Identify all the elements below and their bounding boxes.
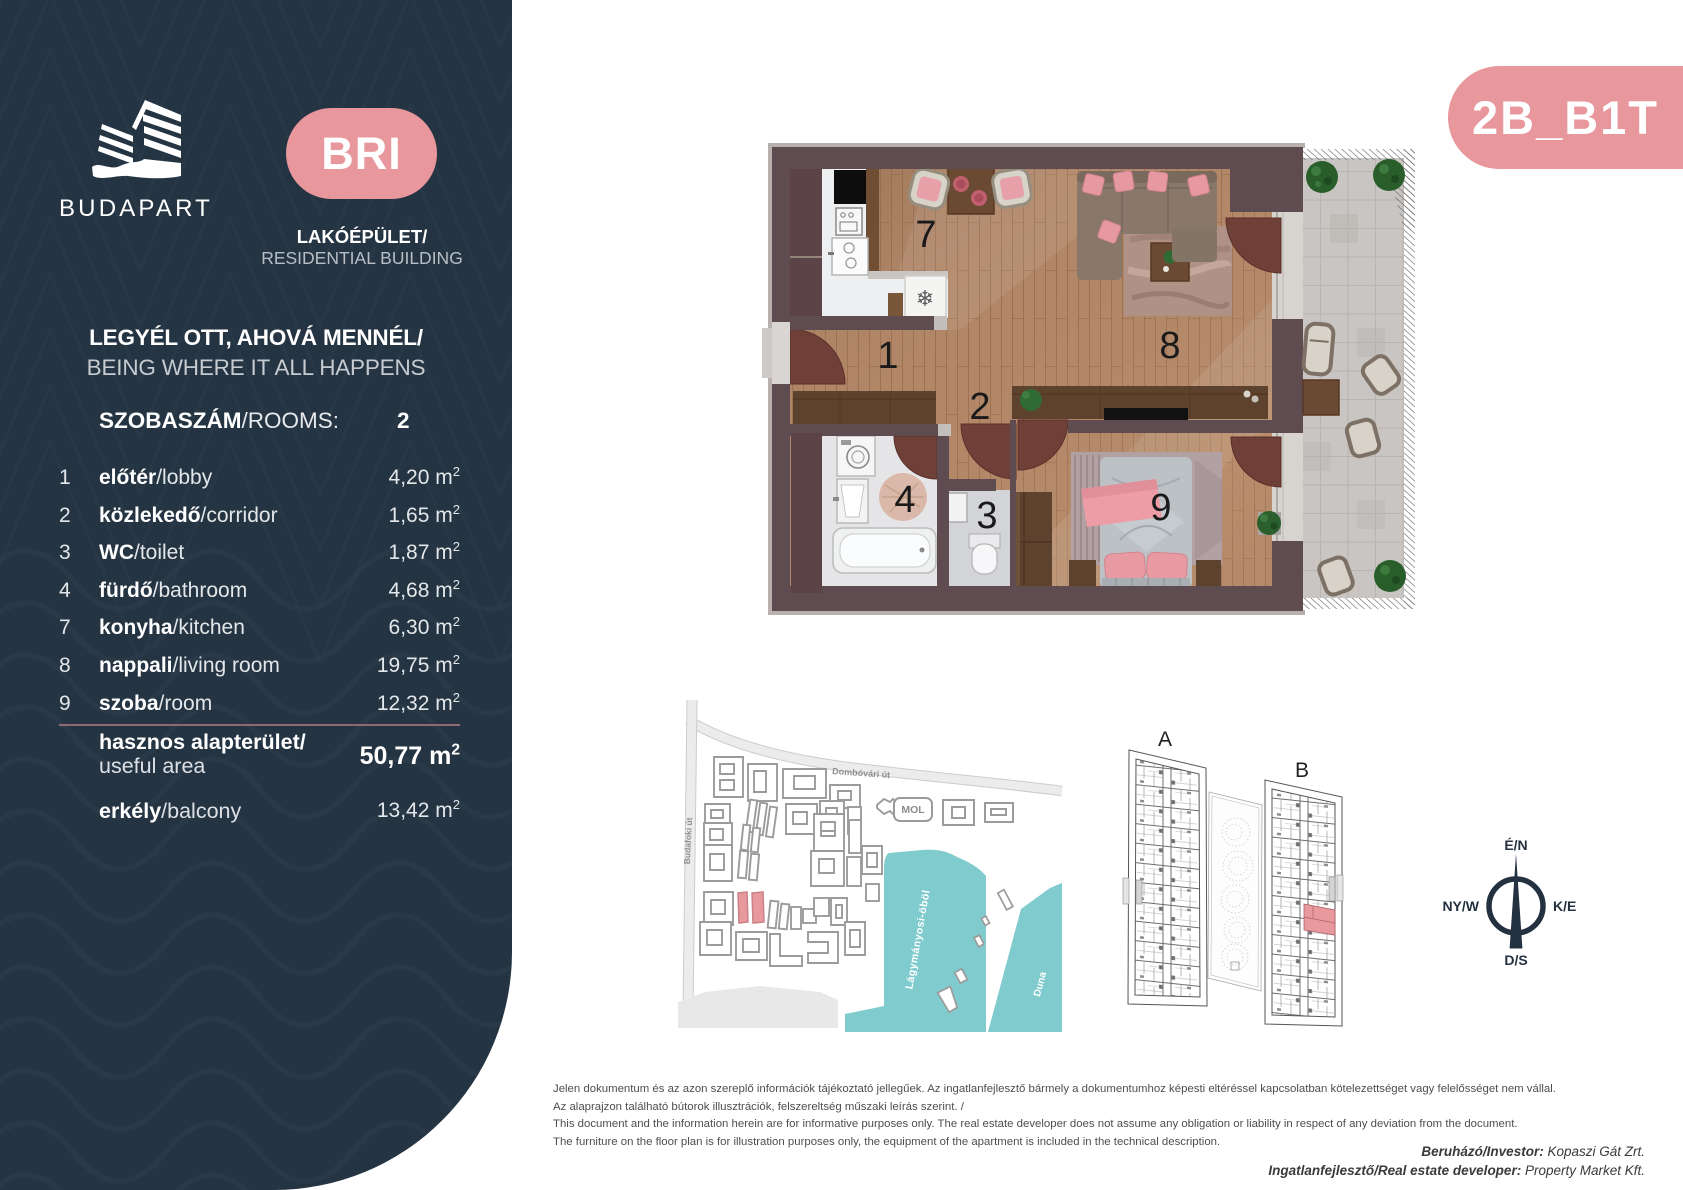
svg-text:❄: ❄ [916,286,934,311]
svg-text:8: 8 [1159,325,1180,367]
svg-text:MOL: MOL [901,804,925,816]
svg-text:9: 9 [1150,487,1171,529]
svg-text:7: 7 [915,214,936,256]
svg-text:K/E: K/E [1553,898,1576,914]
svg-text:2: 2 [969,386,990,428]
svg-text:B: B [1295,759,1309,782]
svg-text:3: 3 [976,495,997,537]
svg-text:É/N: É/N [1504,837,1527,853]
svg-text:4: 4 [894,479,915,521]
svg-text:A: A [1158,728,1172,751]
svg-text:NY/W: NY/W [1442,898,1479,914]
svg-text:D/S: D/S [1504,952,1527,968]
svg-text:1: 1 [877,335,898,377]
